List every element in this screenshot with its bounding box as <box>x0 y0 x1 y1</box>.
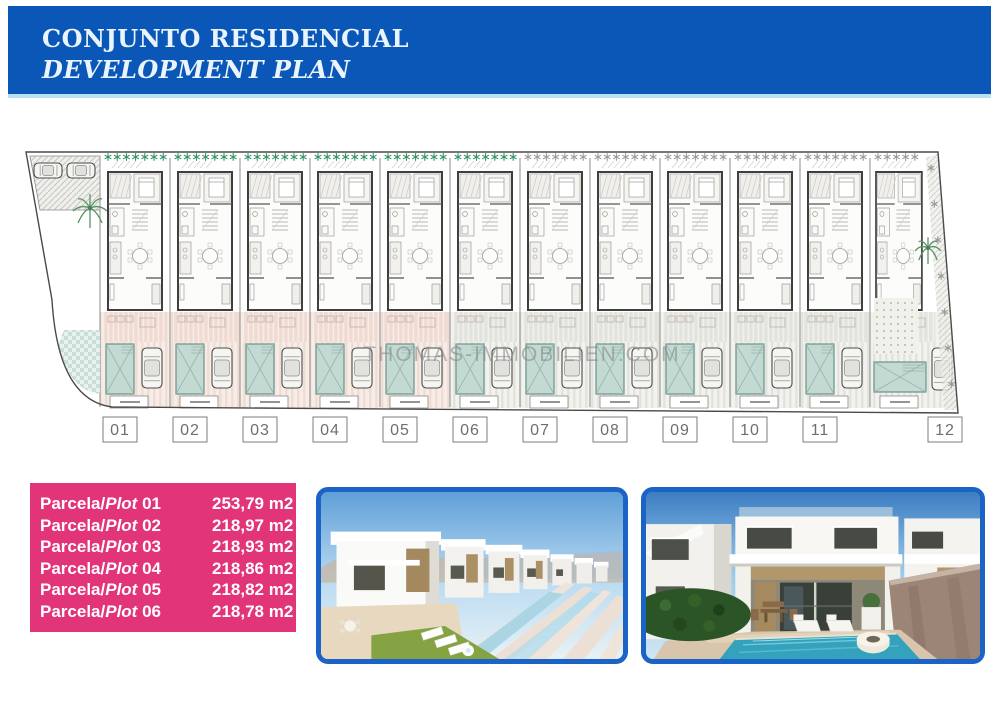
pool <box>106 344 134 394</box>
plot-unit-04 <box>310 154 380 408</box>
watermark: THOMAS-IMMOBILIEN.COM <box>363 343 680 366</box>
site-plan: 010203040506070809101112 THOMAS-IMMOBILI… <box>0 138 1000 455</box>
svg-text:04: 04 <box>320 422 340 439</box>
plot-row: Parcela/Plot 04218,86 m2 <box>40 558 296 580</box>
garden-corner <box>58 330 100 394</box>
terrace <box>803 312 867 342</box>
title-line-1: CONJUNTO RESIDENCIAL <box>42 24 409 53</box>
left-photo <box>316 487 628 664</box>
plot-number-05: 05 <box>383 417 417 442</box>
plot-unit-08 <box>590 154 660 408</box>
svg-text:06: 06 <box>460 422 480 439</box>
right-photo <box>641 487 985 664</box>
plot-row: Parcela/Plot 02218,97 m2 <box>40 515 296 537</box>
svg-text:09: 09 <box>670 422 690 439</box>
svg-text:02: 02 <box>180 422 200 439</box>
pool-terrace-render <box>646 492 980 659</box>
header-accent-line <box>8 94 991 98</box>
plot-number-04: 04 <box>313 417 347 442</box>
plot-row-label: Parcela/Plot 03 <box>40 536 212 558</box>
plot-row-area: 218,97 m2 <box>212 515 296 537</box>
plot-number-06: 06 <box>453 417 487 442</box>
pool <box>806 344 834 394</box>
car-icon <box>282 348 302 388</box>
terrace <box>593 312 657 342</box>
svg-text:10: 10 <box>740 422 760 439</box>
plot-row: Parcela/Plot 01253,79 m2 <box>40 493 296 515</box>
plot-row: Parcela/Plot 06218,78 m2 <box>40 601 296 623</box>
car-icon <box>842 348 862 388</box>
plot-row-area: 218,82 m2 <box>212 579 296 601</box>
plot-unit-02 <box>170 154 240 408</box>
plot-unit-11 <box>800 154 870 408</box>
svg-text:08: 08 <box>600 422 620 439</box>
plot-row-area: 218,86 m2 <box>212 558 296 580</box>
plot-row-label: Parcela/Plot 05 <box>40 579 212 601</box>
plot-number-02: 02 <box>173 417 207 442</box>
terrace <box>173 312 237 342</box>
svg-text:12: 12 <box>935 422 955 439</box>
terrace <box>453 312 517 342</box>
terrace <box>523 312 587 342</box>
terrace <box>733 312 797 342</box>
plot-unit-09 <box>660 154 730 408</box>
plot-unit-01 <box>100 154 170 408</box>
terrace <box>243 312 307 342</box>
terrace <box>313 312 377 342</box>
svg-text:11: 11 <box>811 422 830 439</box>
plot-unit-05 <box>380 154 450 408</box>
plot-number-12: 12 <box>928 417 962 442</box>
plot-number-09: 09 <box>663 417 697 442</box>
car-icon <box>34 163 62 178</box>
svg-text:05: 05 <box>390 422 410 439</box>
pool <box>246 344 274 394</box>
plot-table-rows: Parcela/Plot 01253,79 m2Parcela/Plot 022… <box>40 493 296 622</box>
plot-number-01: 01 <box>103 417 137 442</box>
plot-unit-06 <box>450 154 520 408</box>
pool <box>316 344 344 394</box>
plot-row-area: 253,79 m2 <box>212 493 296 515</box>
plot-row-label: Parcela/Plot 01 <box>40 493 212 515</box>
pool <box>874 362 926 392</box>
plot-unit-10 <box>730 154 800 408</box>
svg-text:01: 01 <box>110 422 130 439</box>
plot-number-10: 10 <box>733 417 767 442</box>
header-banner: CONJUNTO RESIDENCIAL DEVELOPMENT PLAN <box>8 6 991 94</box>
svg-text:07: 07 <box>530 422 550 439</box>
planter <box>862 593 881 630</box>
terrace <box>383 312 447 342</box>
title-line-2: DEVELOPMENT PLAN <box>42 55 350 84</box>
plot-row: Parcela/Plot 05218,82 m2 <box>40 579 296 601</box>
plot-row-label: Parcela/Plot 06 <box>40 601 212 623</box>
plot-row-label: Parcela/Plot 02 <box>40 515 212 537</box>
plot-row-label: Parcela/Plot 04 <box>40 558 212 580</box>
plot-number-08: 08 <box>593 417 627 442</box>
plot-number-03: 03 <box>243 417 277 442</box>
pool-sculpture <box>857 632 890 654</box>
plot-number-11: 11 <box>803 417 837 442</box>
car-icon <box>772 348 792 388</box>
car-icon <box>67 163 95 178</box>
plot-row-area: 218,93 m2 <box>212 536 296 558</box>
pool <box>176 344 204 394</box>
plot-unit-07 <box>520 154 590 408</box>
pool-float-center <box>466 648 471 653</box>
plot-number-07: 07 <box>523 417 557 442</box>
villas-row-render <box>321 492 623 659</box>
terrace <box>103 312 167 342</box>
terrace <box>663 312 727 342</box>
main-villa <box>331 532 441 607</box>
pool <box>736 344 764 394</box>
car-icon <box>212 348 232 388</box>
plot-table: Parcela/Plot 01253,79 m2Parcela/Plot 022… <box>30 483 296 632</box>
plot-unit-03 <box>240 154 310 408</box>
svg-text:03: 03 <box>250 422 270 439</box>
car-icon <box>142 348 162 388</box>
garden-patch <box>874 298 918 354</box>
plot-row-area: 218,78 m2 <box>212 601 296 623</box>
car-icon <box>702 348 722 388</box>
plot-row: Parcela/Plot 03218,93 m2 <box>40 536 296 558</box>
